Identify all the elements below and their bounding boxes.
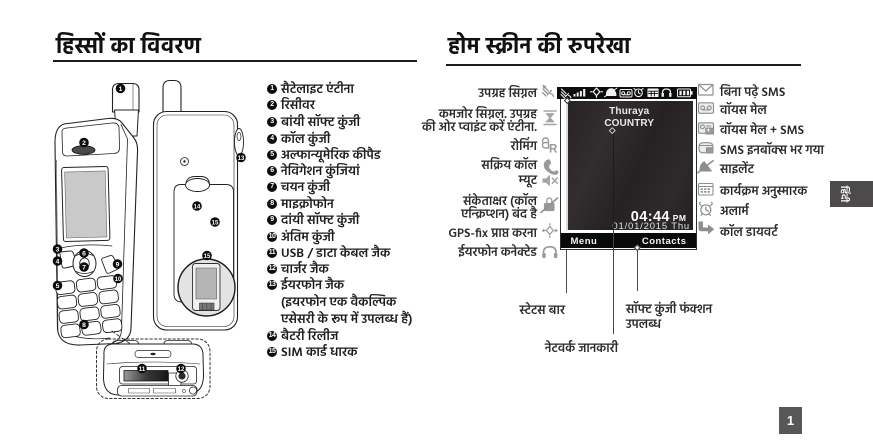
svg-text:2: 2 xyxy=(82,140,86,147)
svg-text:10: 10 xyxy=(115,277,122,283)
svg-text:6: 6 xyxy=(82,251,86,258)
svg-text:15: 15 xyxy=(204,254,211,260)
svg-text:7: 7 xyxy=(82,265,86,272)
svg-text:8: 8 xyxy=(82,322,86,329)
svg-text:12: 12 xyxy=(178,367,185,373)
svg-text:15: 15 xyxy=(212,220,219,226)
svg-text:11: 11 xyxy=(139,367,146,373)
svg-text:4: 4 xyxy=(56,259,60,266)
svg-text:1: 1 xyxy=(119,86,123,93)
svg-text:13: 13 xyxy=(238,156,245,162)
svg-text:3: 3 xyxy=(56,247,60,254)
svg-text:14: 14 xyxy=(194,204,201,210)
svg-text:5: 5 xyxy=(56,283,60,290)
svg-text:9: 9 xyxy=(116,262,120,269)
